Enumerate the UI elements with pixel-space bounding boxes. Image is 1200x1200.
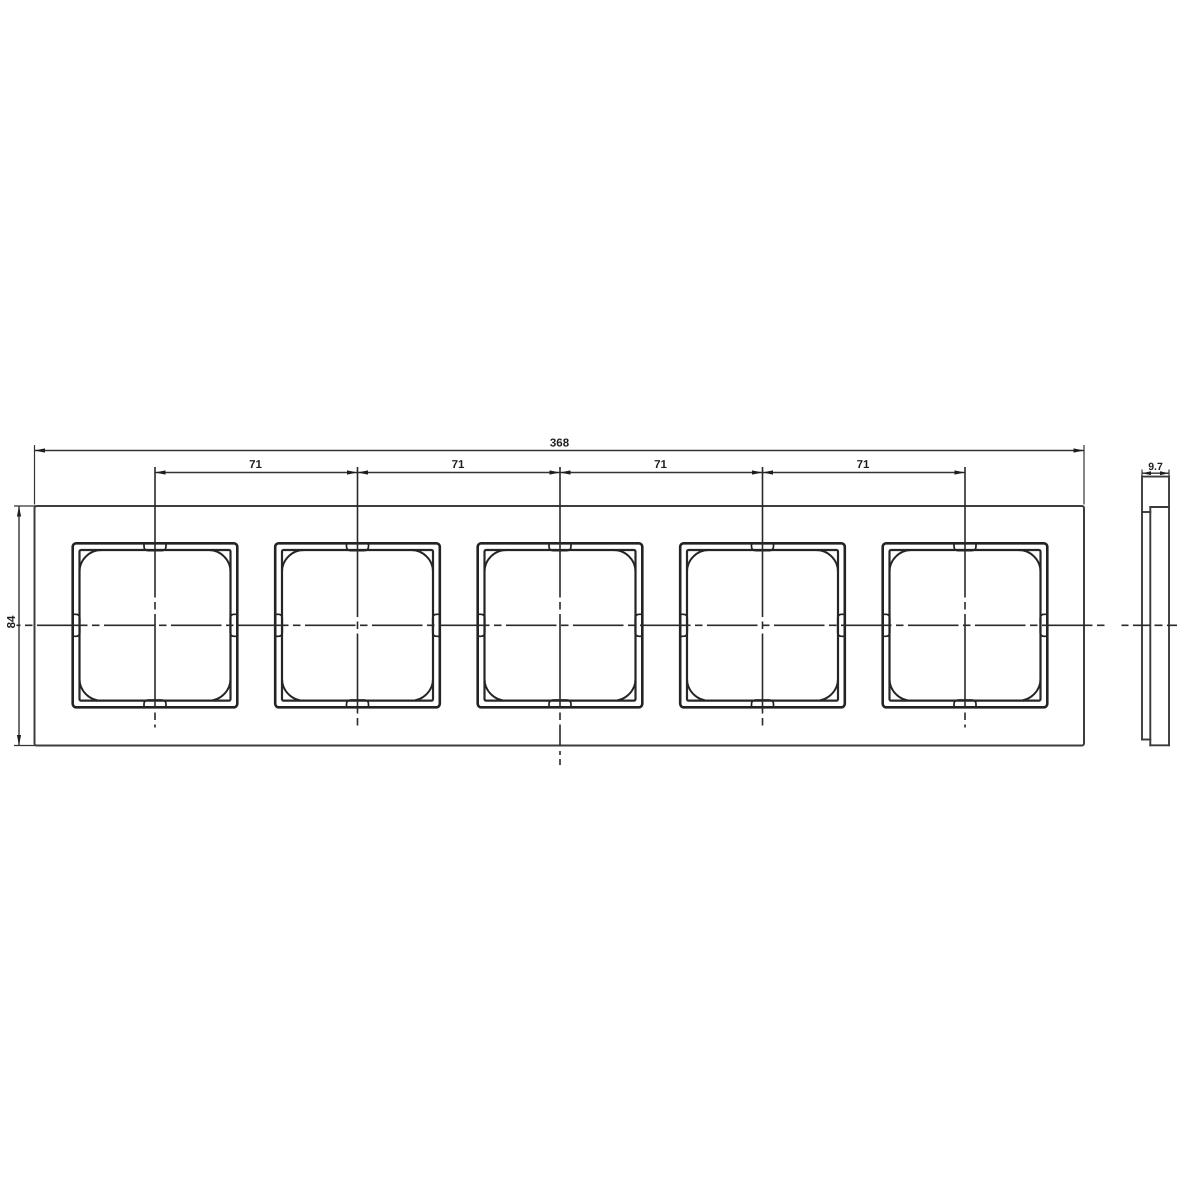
svg-text:368: 368 xyxy=(550,438,570,450)
svg-text:71: 71 xyxy=(857,459,870,471)
svg-text:71: 71 xyxy=(654,459,667,471)
svg-text:71: 71 xyxy=(452,459,465,471)
svg-text:84: 84 xyxy=(6,615,18,628)
svg-text:9.7: 9.7 xyxy=(1148,461,1163,473)
svg-text:71: 71 xyxy=(249,459,262,471)
